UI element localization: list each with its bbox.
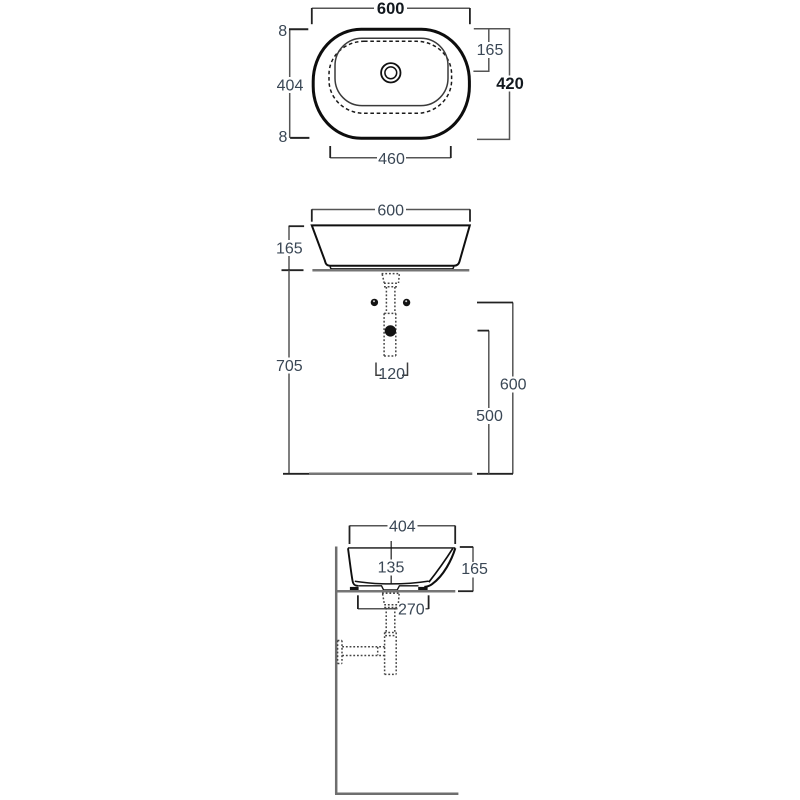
svg-text:165: 165 [477, 42, 504, 59]
svg-text:600: 600 [500, 376, 527, 393]
svg-text:120: 120 [378, 366, 405, 383]
svg-text:8: 8 [278, 129, 287, 146]
svg-text:500: 500 [476, 408, 503, 425]
svg-text:404: 404 [277, 77, 304, 94]
svg-text:165: 165 [461, 561, 488, 578]
svg-text:420: 420 [496, 75, 524, 93]
svg-text:270: 270 [398, 601, 425, 618]
svg-text:600: 600 [377, 0, 405, 18]
svg-text:135: 135 [378, 559, 405, 576]
svg-text:165: 165 [276, 240, 303, 257]
svg-text:8: 8 [278, 23, 287, 40]
svg-text:705: 705 [276, 358, 303, 375]
svg-text:600: 600 [377, 202, 404, 219]
svg-text:460: 460 [378, 151, 405, 168]
svg-text:404: 404 [389, 518, 416, 535]
